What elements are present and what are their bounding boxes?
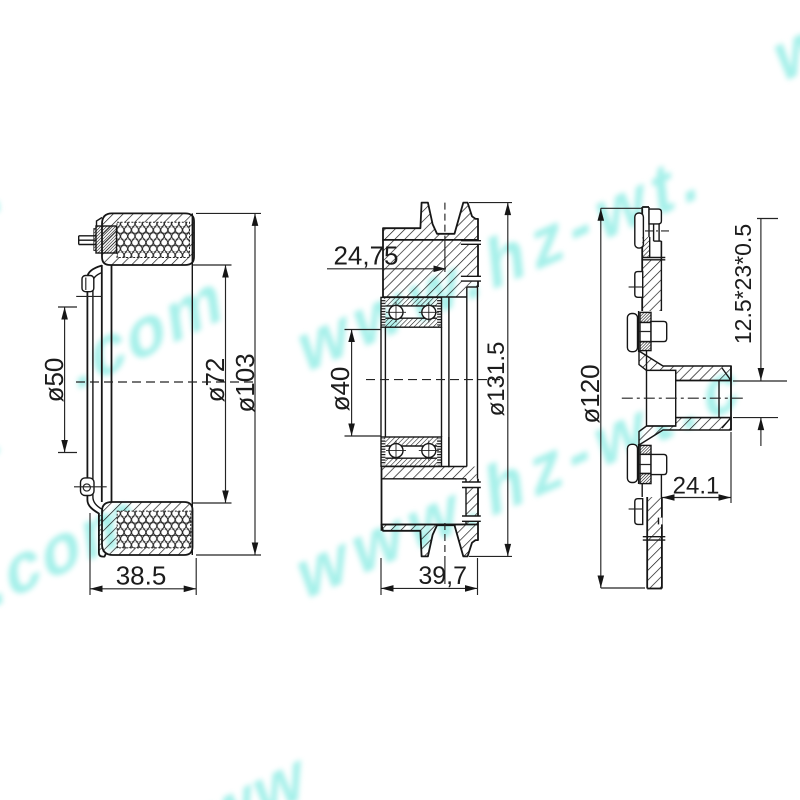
svg-text:ø40: ø40 — [325, 367, 355, 412]
svg-text:ø72: ø72 — [200, 358, 230, 403]
svg-text:39,7: 39,7 — [418, 562, 467, 590]
svg-text:24,75: 24,75 — [333, 241, 398, 271]
svg-text:ø120: ø120 — [575, 364, 605, 423]
svg-text:ø50: ø50 — [39, 358, 69, 403]
svg-text:24.1: 24.1 — [673, 473, 720, 500]
svg-text:12.5*23*0.5: 12.5*23*0.5 — [730, 224, 756, 344]
svg-text:ø103: ø103 — [230, 353, 260, 412]
svg-text:ø131.5: ø131.5 — [483, 342, 510, 417]
svg-text:38.5: 38.5 — [116, 561, 167, 591]
